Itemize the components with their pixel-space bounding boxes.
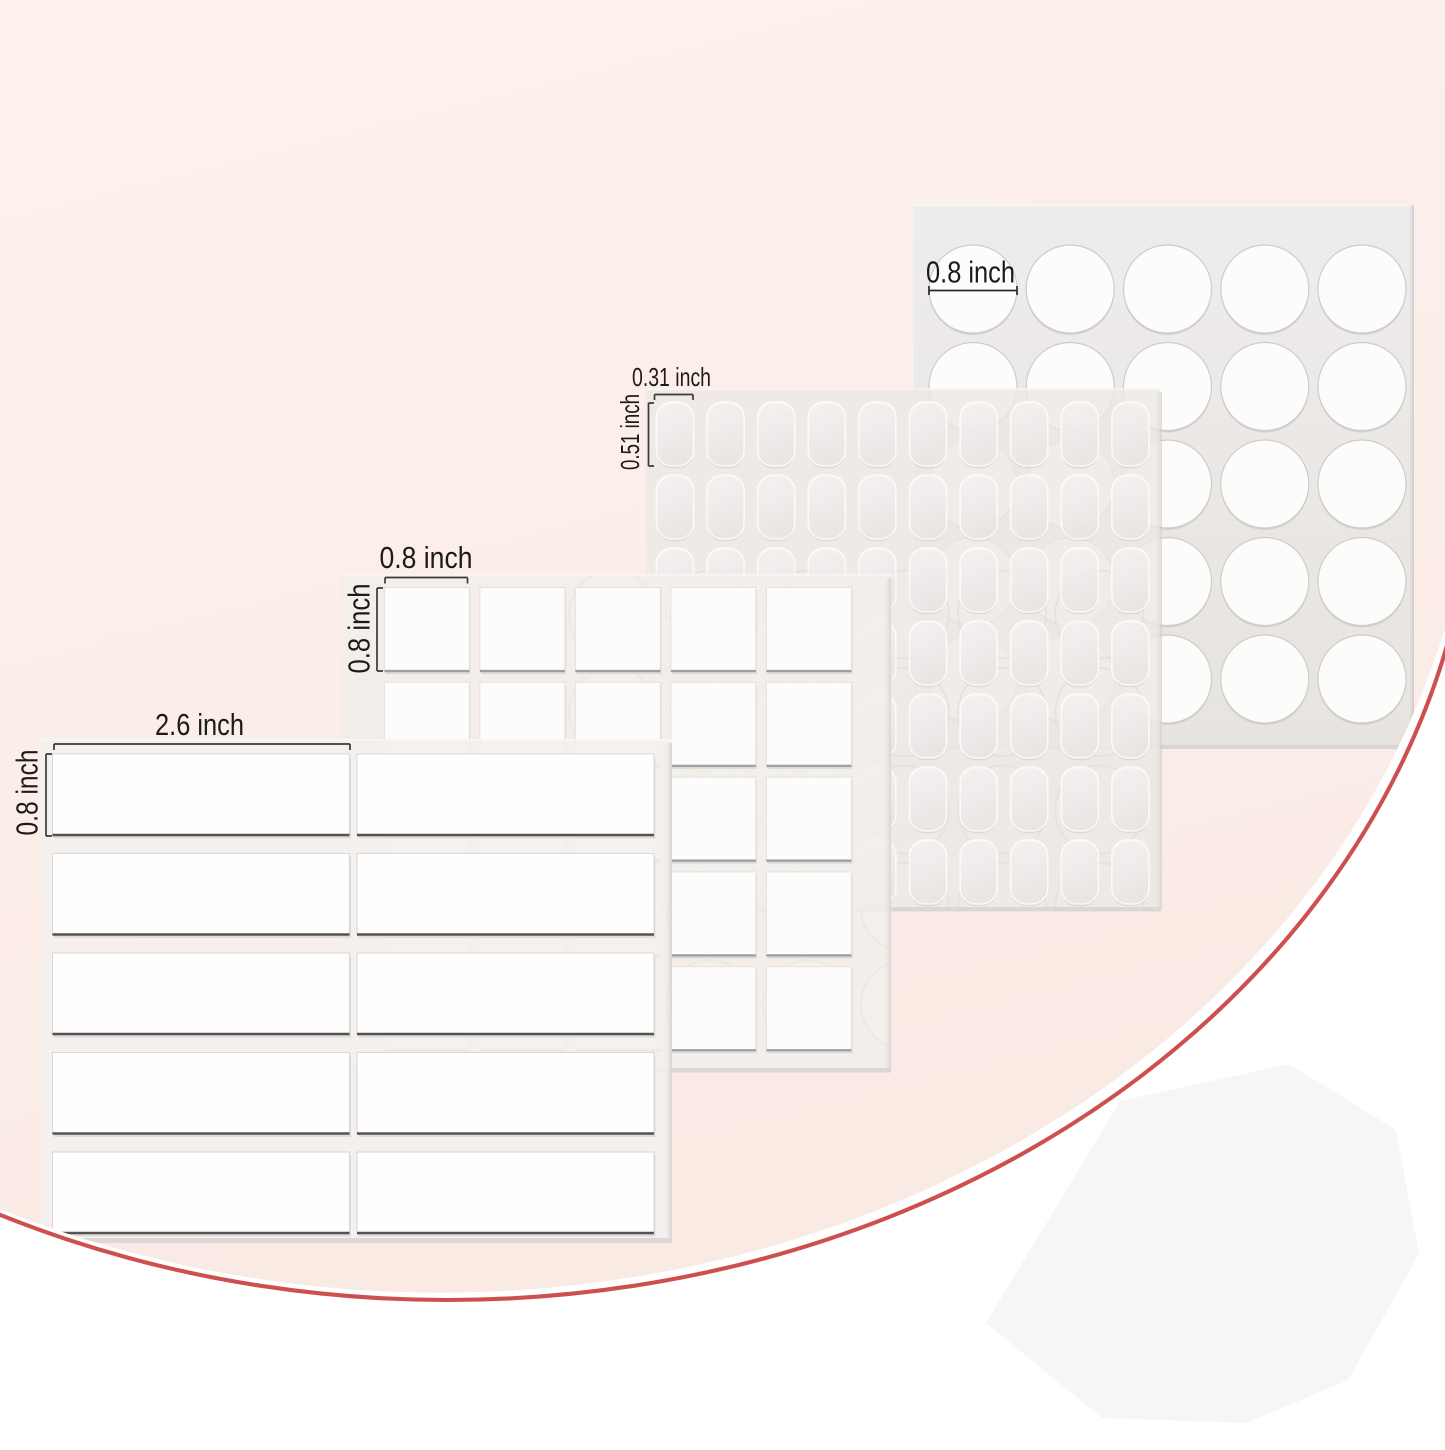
svg-text:0.8 inch: 0.8 inch [10, 750, 45, 836]
svg-text:0.51 inch: 0.51 inch [615, 394, 645, 470]
svg-text:2.6 inch: 2.6 inch [155, 707, 244, 742]
svg-text:0.8 inch: 0.8 inch [342, 584, 377, 674]
svg-text:0.8 inch: 0.8 inch [380, 540, 473, 575]
svg-text:0.8 inch: 0.8 inch [926, 255, 1015, 290]
svg-text:0.31 inch: 0.31 inch [632, 362, 711, 392]
